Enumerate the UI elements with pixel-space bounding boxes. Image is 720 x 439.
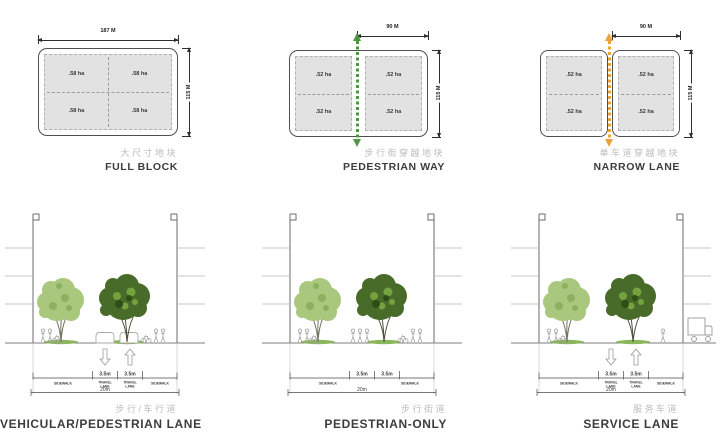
building-walls [290,214,434,343]
lane1-width-label: 3.5m [99,372,111,378]
dimension-tick [432,137,441,138]
dimension-tick [182,48,191,49]
dimension-tick [38,35,39,44]
lane1-width-label: 3.5m [356,372,368,378]
section3-caption-chinese: 服务车道 [529,402,679,415]
tree-light-icon [543,278,590,342]
block1-width-label: 187 M [38,28,178,34]
narrow-lane-arrowhead-up [605,33,613,41]
parcel-area-label: .58 ha [132,108,148,114]
urban-design-diagram-sheet: 187 M .58 ha .58 ha .58 ha .58 ha 115 M … [0,0,720,439]
parcel-area-label: .52 ha [386,72,402,78]
block3-caption-english: NARROW LANE [530,161,680,173]
parcel-divider-horizontal [549,94,599,95]
block3-width-label: 90 M [612,24,680,30]
dimension-tick [432,50,441,51]
lane1-width-label: 3.5m [605,372,617,378]
dimension-tick [182,136,191,137]
lane2-width-label: 3.5m [381,372,393,378]
tree-light-icon [37,278,84,342]
block1-caption: 大尺寸地块 FULL BLOCK [38,146,178,173]
pedestrian-way-arrowhead-up [353,33,361,41]
sidewalk-right-label: SIDEWALK [151,382,169,386]
block1-outline: .58 ha .58 ha .58 ha .58 ha [38,48,178,136]
block2-width-dimension-line [357,36,428,37]
parcel-divider-horizontal [298,94,349,95]
parcel-area-label: .52 ha [386,109,402,115]
block3-width-dimension-line [612,36,680,37]
block2-parcel-right-column: .52 ha .52 ha [365,56,422,131]
block1-width-dimension-line [38,40,178,41]
section3-caption: 服务车道 SERVICE LANE [529,402,679,431]
travel-arrow-up-icon [125,349,135,365]
sidewalk-left-label: SIDEWALK [560,382,578,386]
dimension-tick [178,35,179,44]
dimension-tick [428,31,429,40]
block2-height-label: 115 M [436,84,442,103]
tree-dark-icon [99,274,150,342]
section1-caption-english: VEHICULAR/PEDESTRIAN LANE [0,417,178,431]
parcel-area-label: .58 ha [69,108,85,114]
service-truck-icon [688,318,712,342]
dimension-tick [680,31,681,40]
block1-height-label: 115 M [186,83,192,102]
section2-caption: 步行街道 PEDESTRIAN-ONLY [265,402,447,431]
parcel-divider-horizontal [47,92,169,93]
total-width-label: 20m [357,387,367,393]
parcel-area-label: .58 ha [69,71,85,77]
parcel-divider-horizontal [368,94,419,95]
dimension-tick [684,50,693,51]
section3-caption-english: SERVICE LANE [529,417,679,431]
sidewalk-right-label: SIDEWALK [401,382,419,386]
block1-caption-chinese: 大尺寸地块 [38,146,178,159]
travel-arrow-down-icon [100,349,110,365]
lane2-width-label: 3.5m [630,372,642,378]
parcel-area-label: .52 ha [638,109,654,115]
building-walls [33,214,177,343]
section2-caption-english: PEDESTRIAN-ONLY [265,417,447,431]
tree-dark-icon [356,274,407,342]
block1-caption-english: FULL BLOCK [38,161,178,173]
lane2-width-label: 3.5m [124,372,136,378]
narrow-lane-dashed-path [608,41,611,139]
parcel-area-label: .52 ha [566,72,582,78]
travel-arrow-up-icon [631,349,641,365]
car-outline [120,333,138,344]
street-section-vehicular-pedestrian: 3.5m 3.5m SIDEWALK TRAVEL LANE TRAVEL LA… [5,208,205,408]
car-outline [96,333,114,344]
section1-caption-chinese: 步行/车行道 [0,402,178,415]
block2-parcel-left-column: .52 ha .52 ha [295,56,352,131]
sidewalk-left-label: SIDEWALK [54,382,72,386]
block3-left-outline: .52 ha .52 ha [540,50,608,137]
dimension-tick [684,137,693,138]
sidewalk-left-label: SIDEWALK [319,382,337,386]
parcel-area-label: .52 ha [566,109,582,115]
block3-caption-chinese: 单车道穿越地块 [530,146,680,159]
sidewalk-right-label: SIDEWALK [657,382,675,386]
street-section-pedestrian-only: 3.5m 3.5m SIDEWALK SIDEWALK 20m [262,208,462,408]
lane2-name-bottom: LANE [631,385,641,389]
street-section-service-lane: 3.5m 3.5m SIDEWALK TRAVEL LANE TRAVEL LA… [511,208,711,408]
parcel-divider-horizontal [621,94,671,95]
block3-caption: 单车道穿越地块 NARROW LANE [530,146,680,173]
total-width-label: 20m [606,387,616,393]
pedestrian-way-dashed-path [356,41,359,139]
parcel-area-label: .52 ha [638,72,654,78]
block3-right-outline: .52 ha .52 ha [612,50,680,137]
block3-parcel-right: .52 ha .52 ha [618,56,674,131]
block2-caption-chinese: 步行街穿越地块 [295,146,445,159]
planting-strips [550,340,650,344]
block3-height-label: 115 M [688,84,694,103]
section1-caption: 步行/车行道 VEHICULAR/PEDESTRIAN LANE [0,402,178,431]
lane2-name-bottom: LANE [125,385,135,389]
tree-dark-icon [605,274,656,342]
parcel-area-label: .52 ha [316,72,332,78]
total-width-label: 20m [100,387,110,393]
section2-caption-chinese: 步行街道 [265,402,447,415]
block2-caption-english: PEDESTRIAN WAY [295,161,445,173]
parcel-area-label: .52 ha [316,109,332,115]
building-walls [539,214,683,343]
block1-parcel-area: .58 ha .58 ha .58 ha .58 ha [44,54,172,130]
block2-caption: 步行街穿越地块 PEDESTRIAN WAY [295,146,445,173]
travel-arrow-down-icon [606,349,616,365]
parcel-area-label: .58 ha [132,71,148,77]
block2-width-label: 90 M [357,24,428,30]
planting-strips [301,340,401,344]
block3-parcel-left: .52 ha .52 ha [546,56,602,131]
tree-light-icon [294,278,341,342]
